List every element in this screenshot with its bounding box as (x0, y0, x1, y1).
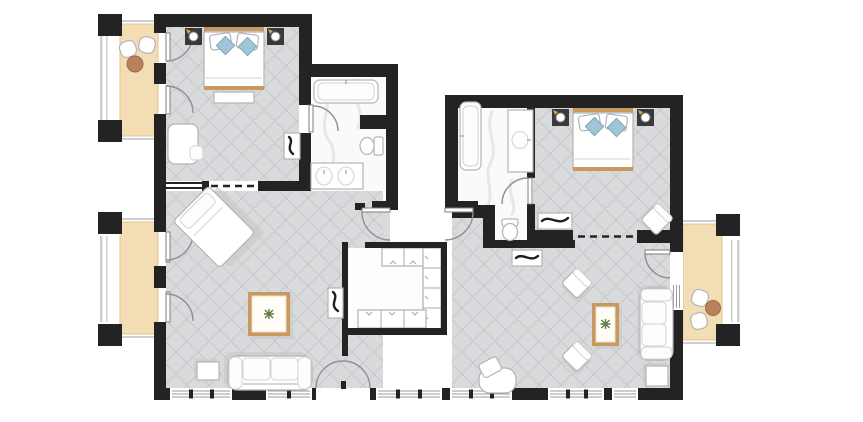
west-wall-segment (154, 266, 166, 288)
foot-bench (214, 92, 254, 103)
railing (120, 138, 156, 140)
porch-east-wall (445, 95, 458, 201)
coffee-table-with-plant (592, 303, 622, 349)
pocket-door-track (166, 187, 206, 189)
sofa-arm (298, 357, 311, 389)
balcony-post (98, 120, 122, 142)
railing (120, 20, 156, 22)
walk-in-closet (348, 248, 441, 330)
bathroom-1-west-wall-lower (299, 133, 311, 191)
closet-east-wall (441, 242, 447, 335)
window (376, 388, 442, 400)
bedroom-1-north-wall (154, 14, 312, 27)
coffee-table-with-plant (248, 292, 293, 339)
floor-plan-canvas (0, 0, 863, 422)
bathtub (314, 80, 378, 103)
railing (106, 36, 108, 120)
double-bed (573, 108, 633, 171)
divider-wall (258, 181, 299, 191)
balcony-post (716, 324, 740, 346)
bathroom-2-sw-wall-v (483, 218, 495, 248)
railing (100, 36, 103, 120)
closet-north-wall (365, 242, 447, 248)
railing (120, 336, 156, 338)
sofa (224, 352, 312, 390)
side-table (194, 359, 219, 380)
hall-strip-floor (383, 212, 390, 242)
deck (120, 222, 158, 334)
balcony-post (98, 212, 122, 234)
nightstand-right (267, 28, 284, 45)
railing (100, 236, 103, 322)
desk-chair (190, 146, 203, 160)
balcony-post (716, 214, 740, 236)
pocket-door-track (166, 182, 206, 184)
balcony-mid-left (98, 212, 158, 346)
hall-console (512, 250, 542, 266)
double-sink-vanity (311, 163, 363, 189)
balcony-top-left (98, 14, 158, 142)
single-sink-vanity (508, 110, 533, 172)
sofa-arm (229, 357, 242, 389)
wardrobe-top-row (382, 248, 426, 266)
nightstand-left (552, 109, 569, 126)
bathtub (460, 102, 481, 170)
sofa-cushion (243, 358, 270, 380)
bedroom-2-sw-wall (533, 230, 573, 243)
west-wall-segment (154, 114, 166, 232)
console-decor (284, 133, 300, 159)
railing (106, 236, 108, 322)
sofa-cushion (271, 358, 298, 380)
wardrobe-bottom-row (358, 310, 426, 328)
bathroom-1-west-wall-upper (299, 77, 311, 105)
bathroom-1-north-wall (299, 64, 398, 77)
porch-west-wall (386, 64, 398, 201)
west-wall-segment (154, 14, 166, 33)
west-wall-segment (154, 63, 166, 84)
sofa (637, 285, 673, 361)
nightstand-left (185, 28, 202, 45)
side-table (643, 363, 668, 386)
sofa-cushion (642, 302, 666, 324)
desk (168, 124, 203, 164)
window (170, 388, 232, 400)
railing (737, 240, 740, 322)
balcony-post (98, 14, 122, 36)
toilet (502, 219, 518, 241)
sofa-arm (641, 289, 672, 301)
balcony-round-table (706, 301, 721, 316)
plant-icon (264, 309, 274, 319)
console-decor (328, 288, 343, 318)
closet-south-wall (342, 328, 447, 335)
railing (120, 218, 156, 220)
sofa-arm (641, 347, 672, 359)
toilet (360, 137, 383, 155)
luggage-bench (538, 213, 572, 229)
railing (731, 240, 733, 322)
floor-plan (0, 0, 863, 422)
nightstand-right (637, 109, 654, 126)
bathroom-1-pier (360, 115, 386, 129)
sofa-cushion (642, 324, 666, 346)
balcony-round-table (127, 56, 143, 72)
plant-icon (601, 319, 611, 329)
balcony-post (98, 324, 122, 346)
window (548, 388, 604, 400)
window (612, 388, 638, 400)
balcony-right (683, 214, 740, 346)
